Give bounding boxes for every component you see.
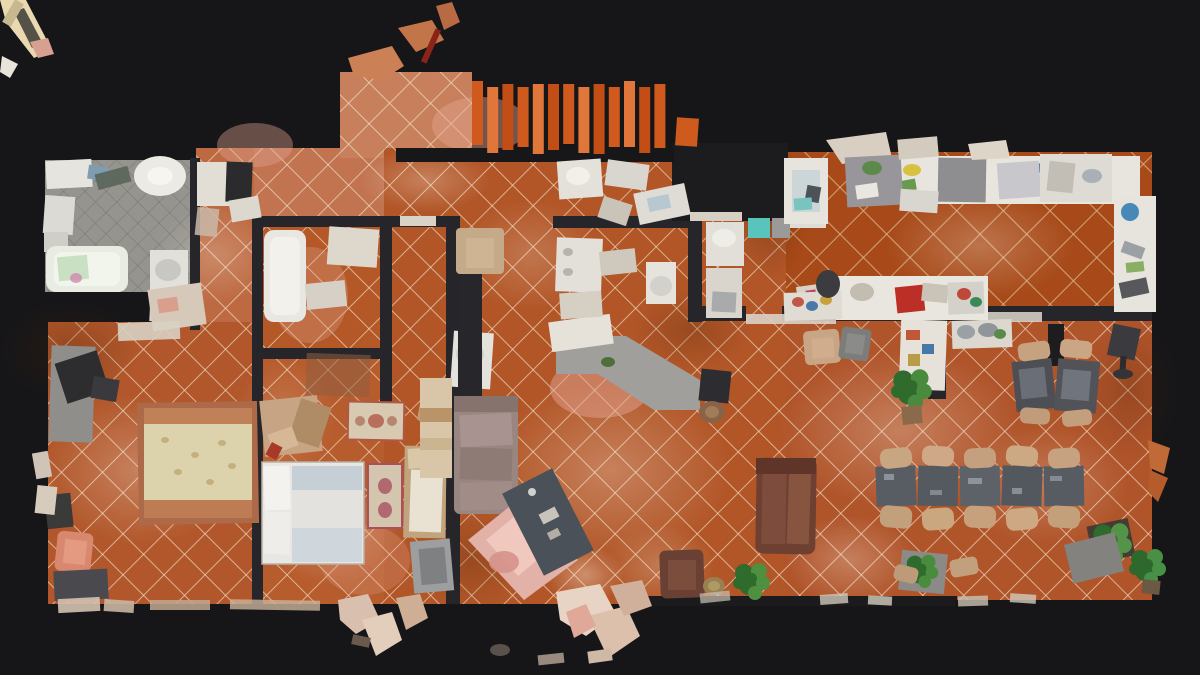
dining-table xyxy=(1001,465,1042,506)
bed-ornate-band xyxy=(144,500,252,518)
tv-base xyxy=(1113,369,1133,379)
desk-dark-glare xyxy=(1019,367,1048,400)
bed-white-pillow xyxy=(263,512,290,555)
dining-table-spec xyxy=(968,478,982,484)
bed-ornate-band xyxy=(144,408,252,424)
edge-fragment xyxy=(104,599,135,613)
dining-table xyxy=(1044,466,1085,507)
sofa-leather-cushion xyxy=(761,466,786,544)
bottom-fragment xyxy=(490,644,510,656)
sofa-pink-pillow xyxy=(489,551,519,573)
bathtub2-inner xyxy=(270,237,300,315)
bath-round-sink-bowl xyxy=(147,167,173,185)
floorplan-svg xyxy=(0,0,1200,675)
kitchen-island-item xyxy=(957,288,971,300)
cabinet-metal-top xyxy=(418,547,447,585)
wc-knob xyxy=(563,248,573,256)
dining-chair xyxy=(921,445,954,467)
dining-table xyxy=(918,466,959,507)
desk-chair xyxy=(1019,407,1050,425)
kitchen-item xyxy=(1082,169,1102,183)
desk-chair xyxy=(1061,408,1093,427)
kitchen-island-item xyxy=(970,297,982,307)
bed-white-pillow xyxy=(263,466,291,511)
bed-ornate-motif xyxy=(206,479,214,485)
shelf-white xyxy=(118,321,181,341)
bottom-fragment xyxy=(538,653,565,666)
kitchen-herb xyxy=(862,161,882,175)
chair-pink-seat xyxy=(63,539,87,565)
dining-table xyxy=(875,465,916,506)
wc-dresser xyxy=(555,237,603,293)
bed-ornate-cover xyxy=(144,424,252,500)
pillow-shelf-row xyxy=(420,408,452,422)
kitchen-island-red xyxy=(895,285,926,314)
shelf-clutter-item xyxy=(792,297,804,307)
teal-cube xyxy=(748,218,770,238)
bath2-blur xyxy=(305,353,370,397)
rug-medallion xyxy=(378,502,392,518)
dining-chair xyxy=(879,505,913,530)
dining-table-spec xyxy=(884,474,894,480)
dining-chair xyxy=(1005,445,1039,468)
hall-dark-item xyxy=(225,162,252,203)
sofa-taupe-back xyxy=(454,396,518,412)
bottom-fragment xyxy=(362,612,402,656)
wc-fixture xyxy=(559,291,603,320)
cabinet-item xyxy=(908,354,920,366)
corner-fragment xyxy=(0,56,18,78)
kitchen-counter-piece xyxy=(899,189,938,214)
sofa-taupe-cushion xyxy=(459,447,512,481)
bed-ornate-motif xyxy=(228,463,236,469)
dining-chair xyxy=(921,507,954,531)
kitchen-item xyxy=(997,161,1041,200)
bathtub-item xyxy=(70,273,82,283)
scene-root xyxy=(0,0,1200,665)
bed-white-blanket xyxy=(292,466,362,490)
bed-ornate-motif xyxy=(174,469,182,475)
scan-fragment xyxy=(436,2,460,30)
wc-sink-bowl xyxy=(566,167,590,185)
hall-fragment xyxy=(195,207,220,237)
kitchen-sink xyxy=(1047,161,1076,194)
dark-bag xyxy=(90,376,119,402)
side-table-dark xyxy=(698,369,731,404)
dining-chair xyxy=(963,447,996,469)
bed-ornate-motif xyxy=(218,440,226,446)
blur-pink xyxy=(217,123,293,167)
rug-ornate xyxy=(368,464,402,528)
kitchen-item-blue xyxy=(1121,203,1139,221)
armchair-leather-seat xyxy=(668,560,696,590)
planter xyxy=(901,405,923,425)
dining-table-spec xyxy=(1012,488,1022,494)
white-room-item xyxy=(794,197,813,210)
desk-dark-glare xyxy=(1061,369,1092,401)
sofa-taupe-cushion xyxy=(459,413,513,448)
kitchen-item xyxy=(903,164,921,176)
wc2-shower-grey xyxy=(711,291,736,312)
bed-white-blanket xyxy=(292,528,362,562)
pillow-shelf-row xyxy=(420,438,452,450)
wc2-sink-bowl xyxy=(712,229,736,247)
bottom-fragment xyxy=(587,648,612,663)
sofa-leather-cushion xyxy=(787,466,812,545)
bath-fixture xyxy=(43,195,76,235)
cabinet-item xyxy=(922,344,934,354)
door-threshold xyxy=(690,212,742,221)
wall xyxy=(380,224,392,422)
rug-medallion xyxy=(387,416,397,426)
dining-chair xyxy=(1005,507,1039,532)
bath2-shelf xyxy=(327,226,380,267)
kitchen-island-item xyxy=(850,283,874,301)
dining-chair xyxy=(1047,447,1080,469)
bed-ornate-motif xyxy=(161,437,169,443)
scan-fragment xyxy=(897,136,939,159)
bed-white-sheet xyxy=(292,490,362,530)
dining-chair xyxy=(1047,505,1080,529)
edge-fragment xyxy=(1010,593,1037,604)
wardrobe-dark xyxy=(458,266,482,400)
edge-fragment xyxy=(58,597,101,613)
toilet-seat xyxy=(155,259,181,281)
rug-medallion xyxy=(378,478,392,494)
desk-chair xyxy=(1059,338,1093,359)
door-threshold xyxy=(400,216,436,226)
dining-chair xyxy=(879,446,913,469)
stool-brown-top xyxy=(705,406,719,418)
planter xyxy=(1141,579,1160,595)
bath2-fixture xyxy=(305,280,347,310)
edge-fragment xyxy=(958,595,988,606)
edge-fragment xyxy=(35,485,58,515)
dining-chair xyxy=(963,505,996,529)
low-table-dark xyxy=(53,569,108,602)
stool-round-top xyxy=(708,581,720,591)
kitchen-item xyxy=(1126,261,1145,273)
scan-fragment xyxy=(157,297,179,314)
edge-fragment xyxy=(820,593,849,605)
coffee-table-item xyxy=(528,488,536,496)
kitchen-appliance xyxy=(938,158,987,203)
floorplan-canvas[interactable] xyxy=(0,0,1200,675)
cabinet-item xyxy=(906,330,920,340)
threshold-strip xyxy=(980,312,1042,322)
wc-knob xyxy=(563,268,573,276)
rug-medallion xyxy=(355,416,365,426)
bowl-greens xyxy=(994,329,1006,339)
scan-fragment-orange xyxy=(675,117,699,146)
wc-fixture xyxy=(599,248,637,276)
shelf-clutter-item xyxy=(806,301,818,311)
scan-fragment xyxy=(968,140,1010,160)
bed-ornate-motif xyxy=(191,452,199,458)
dining-table-spec xyxy=(1050,476,1062,481)
bottom-fragment-dark xyxy=(351,634,371,648)
edge-fragment xyxy=(150,600,210,610)
armchair-tan-seat xyxy=(811,337,835,359)
bowl xyxy=(957,325,975,339)
bath-sink-counter xyxy=(45,159,92,189)
helmet-dark xyxy=(816,270,840,298)
pillow-shelf xyxy=(420,378,452,478)
daybed-cushion xyxy=(409,469,443,532)
sofa-leather-back xyxy=(756,458,816,474)
dining-table xyxy=(960,466,1001,507)
kitchen-island-item xyxy=(921,283,949,304)
edge-fragment xyxy=(230,599,320,611)
edge-fragment xyxy=(868,595,892,605)
console-bottle xyxy=(601,357,615,367)
armchair-tan-seat xyxy=(466,238,494,268)
rug-medallion xyxy=(368,414,384,428)
chair-grey-seat xyxy=(845,333,866,355)
wc-toilet-seat xyxy=(650,276,672,296)
dining-table-spec xyxy=(930,490,942,495)
wall xyxy=(688,216,702,322)
